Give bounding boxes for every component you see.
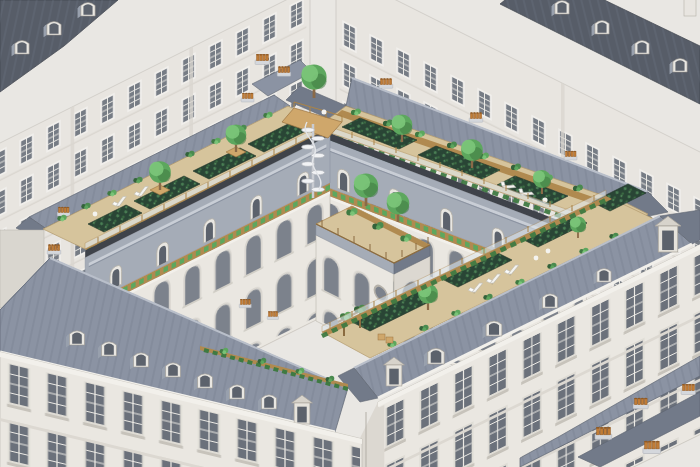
chimney-pots <box>277 66 291 76</box>
corner-quoin <box>378 405 384 467</box>
wood-crate <box>378 334 385 340</box>
chimney-pots <box>255 54 269 65</box>
bistro-table <box>546 249 551 254</box>
bistro-table <box>322 110 327 115</box>
stair-step <box>302 145 315 150</box>
chimney-pots <box>643 441 661 454</box>
chimney-stack <box>684 0 696 16</box>
chimney-pots <box>681 384 695 395</box>
chimney-pots <box>564 151 577 160</box>
bistro-table <box>534 256 539 261</box>
stair-step <box>312 187 325 192</box>
chimney-pots <box>47 244 61 254</box>
chimney-pots <box>239 299 251 308</box>
wood-crate <box>386 337 393 343</box>
chimney-pots <box>595 427 612 439</box>
chimney-pots <box>633 398 648 409</box>
chimney-pots <box>57 207 70 216</box>
chimney-pots <box>241 93 254 102</box>
stair-step <box>302 128 315 133</box>
illustration-canvas <box>0 0 700 467</box>
bistro-table <box>93 212 98 217</box>
stair-step <box>302 179 315 184</box>
stair-step <box>312 136 325 141</box>
chimney-pots <box>469 112 483 122</box>
chimney-pots <box>267 311 278 319</box>
paris-rooftop-garden-illustration <box>0 0 700 467</box>
chimney-pots <box>379 78 393 88</box>
